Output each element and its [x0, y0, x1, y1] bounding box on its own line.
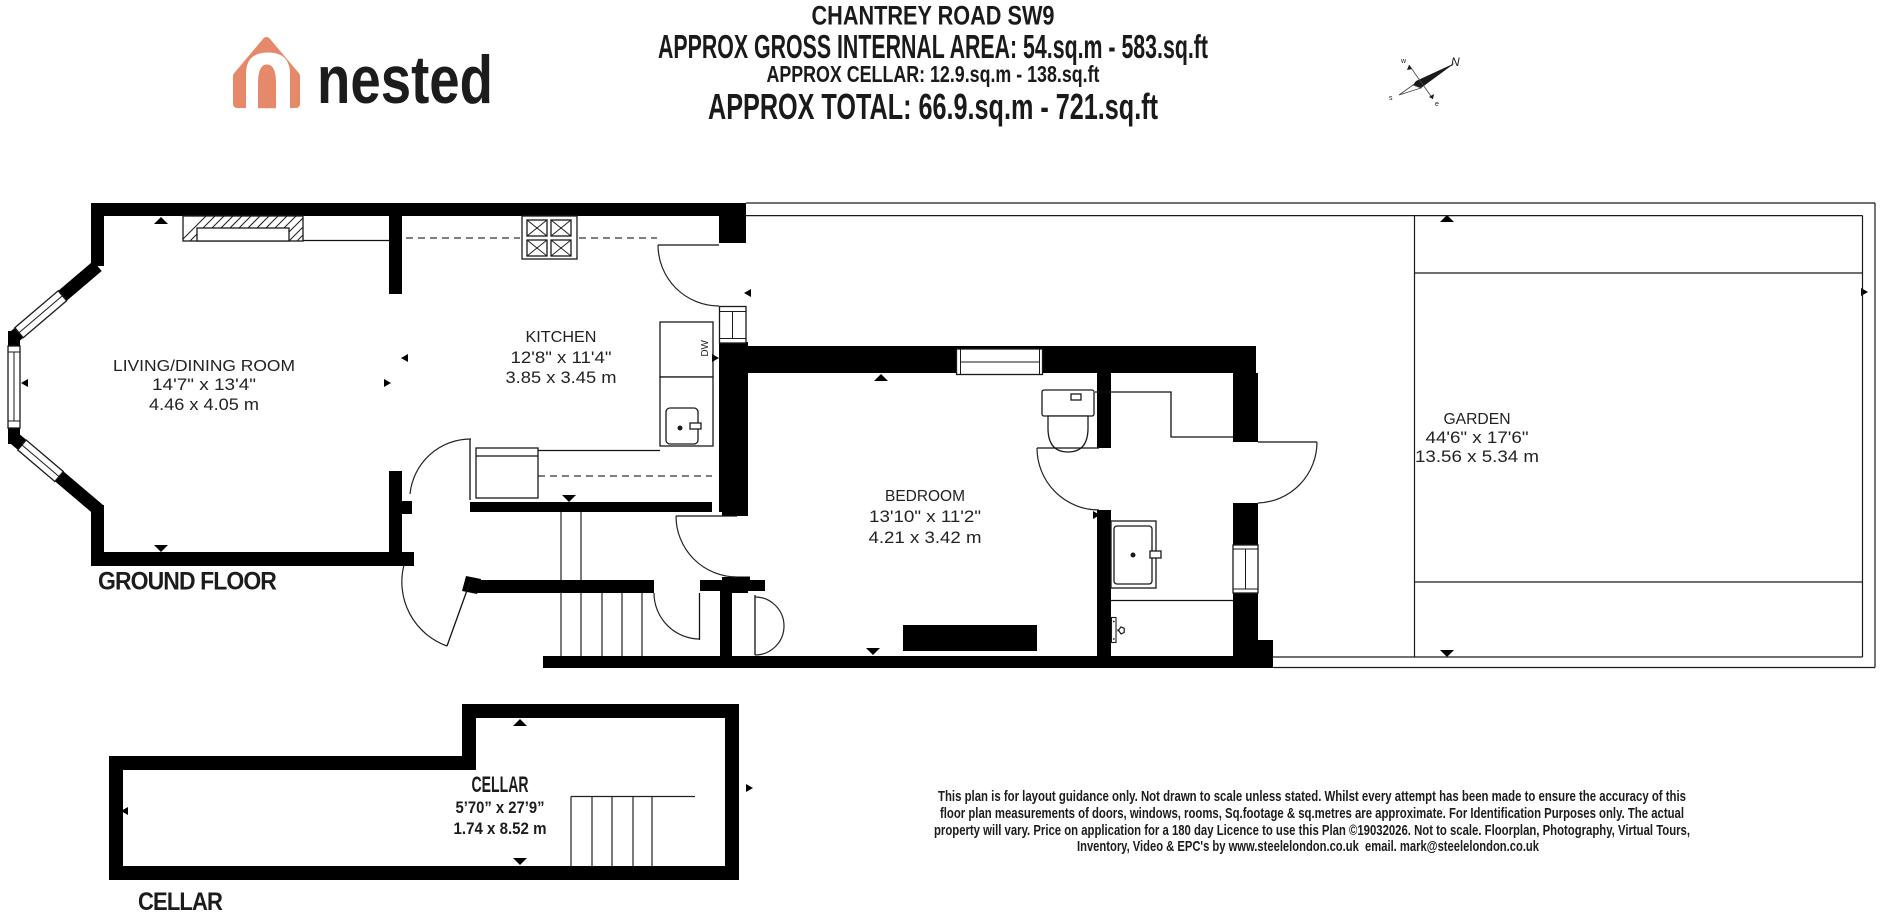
svg-text:1.74 x 8.52 m: 1.74 x 8.52 m — [454, 819, 547, 838]
svg-text:5’70” x 27’9”: 5’70” x 27’9” — [456, 798, 545, 817]
svg-text:w: w — [1400, 58, 1407, 65]
svg-text:GARDEN: GARDEN — [1444, 411, 1511, 428]
svg-text:44'6" x 17'6": 44'6" x 17'6" — [1426, 428, 1529, 447]
svg-text:CELLAR: CELLAR — [472, 772, 529, 797]
svg-text:APPROX TOTAL: 66.9.sq.m - 721.: APPROX TOTAL: 66.9.sq.m - 721.sq.ft — [708, 86, 1158, 127]
svg-text:LIVING/DINING ROOM: LIVING/DINING ROOM — [113, 358, 295, 375]
svg-text:3.85 x 3.45 m: 3.85 x 3.45 m — [506, 368, 617, 387]
svg-text:12'8" x 11'4": 12'8" x 11'4" — [511, 348, 612, 367]
svg-text:property will vary. Price on a: property will vary. Price on application… — [934, 822, 1690, 839]
svg-text:e: e — [1435, 101, 1439, 108]
svg-text:14'7" x 13'4": 14'7" x 13'4" — [152, 375, 256, 394]
svg-text:GROUND FLOOR: GROUND FLOOR — [98, 568, 277, 596]
svg-text:13.56 x 5.34 m: 13.56 x 5.34 m — [1415, 447, 1539, 466]
svg-text:KITCHEN: KITCHEN — [526, 329, 597, 346]
svg-text:4.21 x 3.42 m: 4.21 x 3.42 m — [869, 528, 982, 547]
svg-text:CHANTREY ROAD SW9: CHANTREY ROAD SW9 — [812, 1, 1055, 31]
svg-text:nested: nested — [317, 42, 493, 118]
svg-text:floor plan measurements of doo: floor plan measurements of doors, window… — [940, 805, 1684, 822]
svg-text:s: s — [1389, 95, 1393, 102]
svg-text:4.46 x 4.05 m: 4.46 x 4.05 m — [149, 395, 259, 414]
svg-text:BEDROOM: BEDROOM — [885, 488, 965, 505]
svg-text:Inventory, Video & EPC's by ww: Inventory, Video & EPC's by www.steelelo… — [1077, 838, 1539, 855]
svg-text:N: N — [1451, 55, 1460, 69]
svg-text:CELLAR: CELLAR — [138, 888, 223, 912]
svg-text:This plan is for layout guidan: This plan is for layout guidance only. N… — [938, 788, 1686, 805]
svg-text:DW: DW — [700, 339, 711, 356]
svg-text:13'10" x 11'2": 13'10" x 11'2" — [869, 507, 981, 526]
svg-text:APPROX CELLAR: 12.9.sq.m - 138: APPROX CELLAR: 12.9.sq.m - 138.sq.ft — [767, 61, 1100, 87]
svg-text:APPROX GROSS INTERNAL AREA: 54: APPROX GROSS INTERNAL AREA: 54.sq.m - 58… — [658, 28, 1208, 65]
